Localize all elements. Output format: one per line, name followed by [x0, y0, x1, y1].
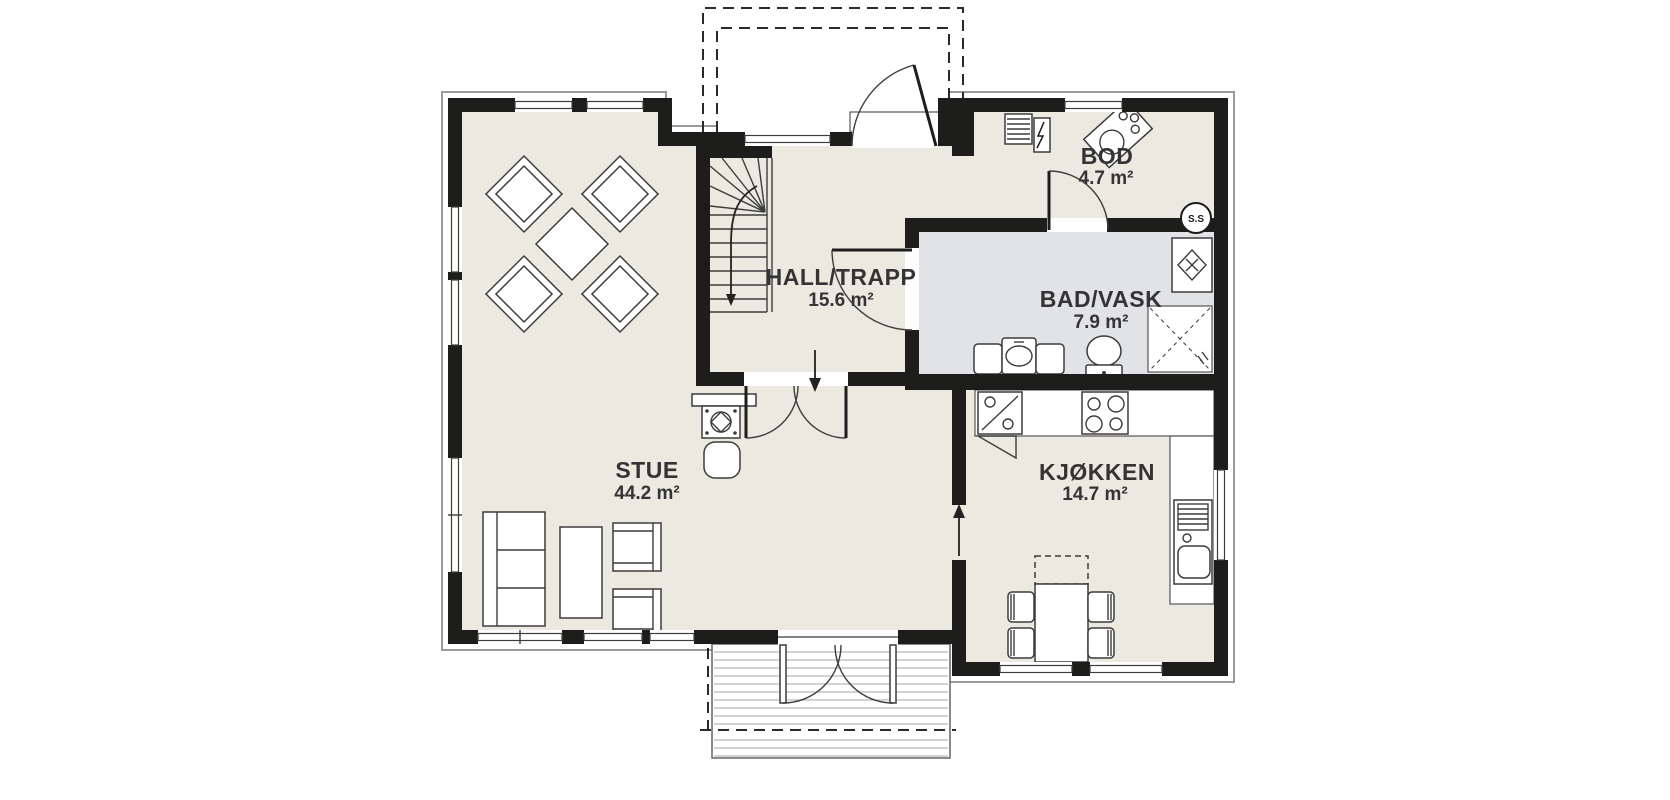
dryer [1036, 344, 1064, 374]
room-area-bad: 7.9 m² [1074, 312, 1129, 333]
entry-porch [703, 8, 963, 132]
kitchen-sink [1174, 500, 1212, 584]
vent-unit [1005, 114, 1032, 144]
room-area-hall: 15.6 m² [808, 290, 873, 311]
duct-shaft [1172, 238, 1212, 292]
cooktop [1082, 392, 1128, 434]
kitchen-chair [1008, 628, 1034, 658]
room-area-kjokken: 14.7 m² [1062, 484, 1127, 505]
window [448, 207, 462, 272]
dishwasher [978, 392, 1022, 434]
floor-plan: S.S STUE 44.2 m² HALL/TRAPP 15.6 m² BOD … [0, 0, 1670, 800]
sofa [483, 512, 545, 626]
window [1065, 98, 1122, 112]
room-label-kjokken: KJØKKEN [1039, 459, 1155, 485]
room-area-stue: 44.2 m² [614, 483, 679, 504]
washing-machine [974, 344, 1002, 374]
room-label-hall: HALL/TRAPP [766, 264, 917, 290]
armchair [613, 523, 661, 571]
room-label-stue: STUE [615, 457, 678, 483]
window [584, 630, 642, 644]
shower [1148, 306, 1212, 372]
coffee-table [560, 527, 602, 618]
kitchen-chair [1088, 628, 1114, 658]
room-area-bod: 4.7 m² [1079, 168, 1134, 189]
window [448, 458, 462, 572]
kitchen-table [1035, 584, 1088, 662]
window [478, 630, 562, 644]
stove [704, 442, 740, 478]
window [1000, 662, 1072, 676]
vanity-sink [1002, 338, 1036, 374]
window [515, 98, 572, 112]
water-heater-label: S.S [1188, 214, 1204, 225]
window [1214, 470, 1228, 560]
window [1090, 662, 1162, 676]
kitchen-chair [1008, 592, 1034, 622]
electrical-panel [1034, 118, 1050, 152]
room-label-bad: BAD/VASK [1040, 286, 1162, 312]
window [650, 630, 694, 644]
terrace [700, 644, 956, 758]
window [587, 98, 643, 112]
room-label-bod: BOD [1081, 143, 1134, 169]
window [745, 132, 830, 146]
armchair [613, 589, 661, 637]
water-heater: S.S [1181, 203, 1211, 233]
kitchen-chair [1088, 592, 1114, 622]
window [448, 280, 462, 345]
